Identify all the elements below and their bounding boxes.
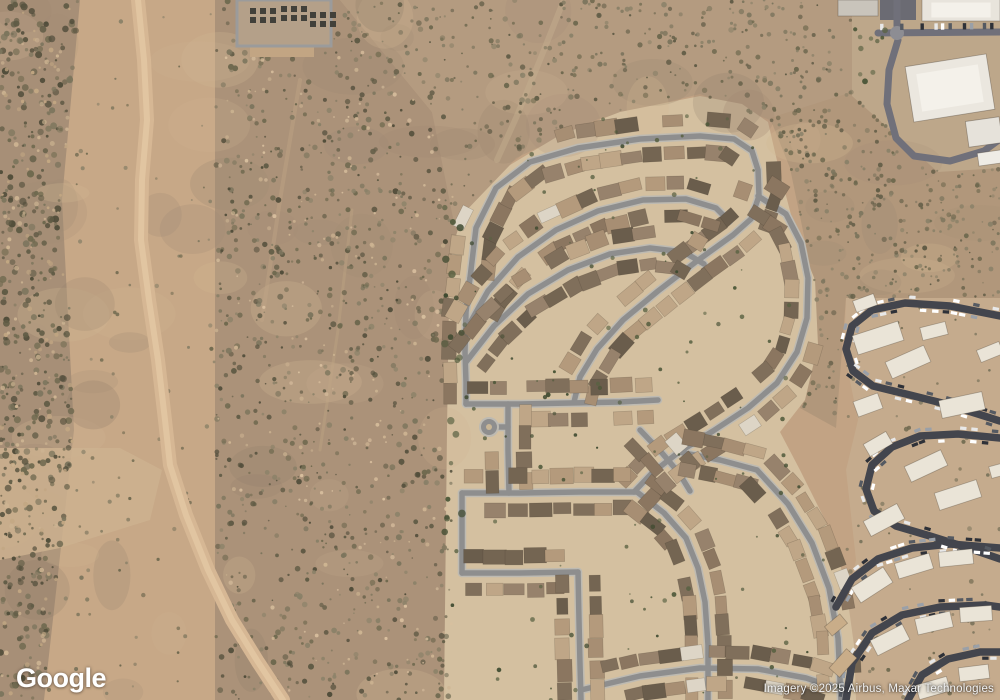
satellite-map-viewport[interactable]: Google Imagery ©2025 Airbus, Maxar Techn… [0,0,1000,700]
imagery-attribution: Imagery ©2025 Airbus, Maxar Technologies [764,683,994,695]
satellite-imagery [0,0,1000,700]
google-logo[interactable]: Google [16,663,106,694]
